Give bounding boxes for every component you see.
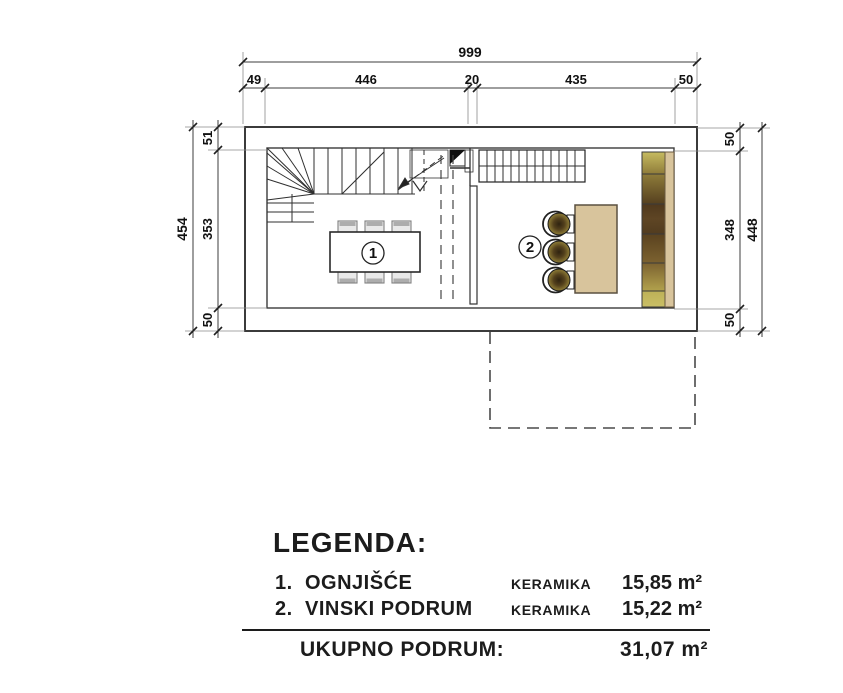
legend-item-number: 1. <box>275 572 305 595</box>
legend-item-material: KERAMIKA <box>511 602 622 618</box>
chairs-top-row <box>338 221 411 232</box>
legend-row-1: 1. OGNJIŠĆE KERAMIKA 15,85 m² <box>242 572 712 598</box>
room-2-number: 2 <box>526 239 534 256</box>
legend-item-material: KERAMIKA <box>511 576 622 592</box>
legend-row-2: 2. VINSKI PODRUM KERAMIKA 15,22 m² <box>242 598 712 624</box>
dim-left-seg-1: 353 <box>200 218 215 240</box>
dim-top-seg-1: 446 <box>355 72 377 87</box>
legend-item-name: VINSKI PODRUM <box>305 598 511 621</box>
dim-top-seg-2: 20 <box>465 72 479 87</box>
dim-left-total: 454 <box>174 217 190 241</box>
dim-right-seg-1: 348 <box>722 219 737 241</box>
barrel-seat <box>543 212 574 237</box>
dim-top-seg-3: 435 <box>565 72 587 87</box>
floor-plan-sheet: 1 <box>0 0 843 693</box>
barrel-seat <box>543 240 574 265</box>
tasting-table <box>575 205 617 293</box>
dining-set: 1 <box>330 221 420 283</box>
dim-top-total: 999 <box>458 44 482 60</box>
dim-right-seg-2: 50 <box>722 313 737 327</box>
barrel-seats <box>543 212 574 293</box>
basement-projection-dashed-outline <box>490 332 695 428</box>
dim-left-seg-0: 51 <box>200 131 215 145</box>
chairs-bottom-row <box>338 272 411 283</box>
dimension-top: 999 49 446 20 435 50 <box>239 44 701 124</box>
legend-item-area: 15,22 m² <box>622 598 712 621</box>
dim-left-seg-2: 50 <box>200 313 215 327</box>
dim-top-seg-4: 50 <box>679 72 693 87</box>
legend-item-name: OGNJIŠĆE <box>305 572 511 595</box>
room-1-number: 1 <box>369 245 377 262</box>
wine-shelf-cabinet <box>642 152 674 307</box>
dim-top-seg-0: 49 <box>247 72 261 87</box>
legend-item-area: 15,85 m² <box>622 572 712 595</box>
floor-plan-drawing: 1 <box>0 0 843 510</box>
dim-right-total: 448 <box>744 218 760 242</box>
legend-title: LEGENDA: <box>273 527 712 559</box>
legend: LEGENDA: 1. OGNJIŠĆE KERAMIKA 15,85 m² 2… <box>242 527 712 662</box>
legend-total-area: 31,07 m² <box>620 638 712 662</box>
legend-total-label: UKUPNO PODRUM: <box>300 638 620 662</box>
wine-rack-grid <box>479 150 585 182</box>
legend-item-number: 2. <box>275 598 305 621</box>
barrel-seat <box>543 268 574 293</box>
dim-right-seg-0: 50 <box>722 132 737 146</box>
legend-total-row: UKUPNO PODRUM: 31,07 m² <box>242 638 712 662</box>
legend-divider <box>242 629 710 631</box>
